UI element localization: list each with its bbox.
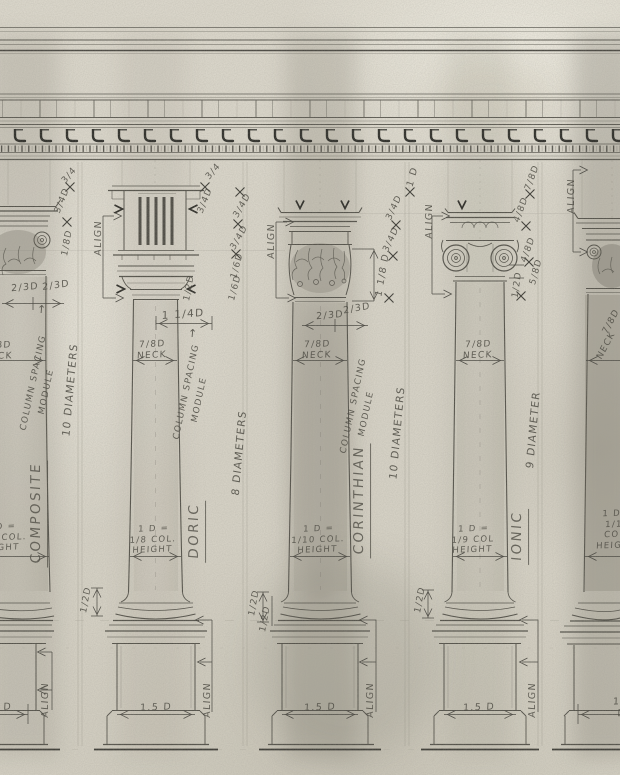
arrow-up-icon: ↑ xyxy=(36,303,48,317)
dimension-label: 2/3D xyxy=(343,301,371,318)
dimension-label: 1/2D xyxy=(182,273,198,302)
dimension-label: 3/4D xyxy=(196,186,216,216)
align-label: ALIGN xyxy=(202,682,214,719)
order-label-composite: COMPOSITE xyxy=(28,458,48,567)
pedestal-width-label: 1.5 D xyxy=(612,696,620,720)
dimension-label: 5/8D xyxy=(528,257,546,287)
dimension-label: 1 D xyxy=(405,165,421,189)
order-label-doric: DORIC xyxy=(186,499,206,563)
neck-label: 7/8D NECK xyxy=(302,339,333,363)
diameter-rule-label: 1 D = 1/10 COL. HEIGHT xyxy=(290,523,345,557)
dimension-label: 3/4D xyxy=(229,223,252,253)
pedestal-width-label: 1.5 D xyxy=(463,701,496,714)
diameter-rule-label: 1 D = 1/10 COL. HEIGHT xyxy=(596,508,620,552)
diameter-rule-label: 1 D = 1/10 COL. HEIGHT xyxy=(0,521,28,555)
dimension-label: 1/2D xyxy=(79,585,95,614)
align-label: ALIGN xyxy=(266,223,278,260)
pedestal-width-label: 1.5 D xyxy=(304,701,337,714)
align-label: ALIGN xyxy=(527,682,539,719)
dimension-label: 1/6D xyxy=(227,273,245,303)
diameters-label: 10 DIAMETERS xyxy=(60,342,81,437)
dimension-label: 3/4D xyxy=(384,193,405,223)
dimension-label: 2/3D xyxy=(42,278,70,294)
dimension-label: NECK xyxy=(595,330,618,362)
align-label: ALIGN xyxy=(93,220,105,257)
align-label: ALIGN xyxy=(424,203,436,240)
dimension-label: 2/3D xyxy=(316,309,344,323)
dimension-label: 1/2D xyxy=(258,604,274,633)
architectural-sketch-sheet: 3/43/4D1/8DALIGN2/3D2/3D↑COLUMN SPACINGM… xyxy=(0,0,620,775)
annotation-layer: 3/43/4D1/8DALIGN2/3D2/3D↑COLUMN SPACINGM… xyxy=(0,0,620,775)
order-label-ionic: IONIC xyxy=(509,507,529,565)
dimension-label: 3/4D xyxy=(232,191,255,221)
dimension-label: 3/4 xyxy=(204,161,224,183)
arrow-up-icon: ↑ xyxy=(187,327,199,341)
diameter-rule-label: 1 D = 1/9 COL HEIGHT xyxy=(451,523,495,556)
neck-label: 7/8D NECK xyxy=(463,339,494,363)
align-label: ALIGN xyxy=(566,178,578,215)
dimension-label: 1 1/4D xyxy=(162,307,205,323)
dimension-label: 3/4D xyxy=(381,225,402,255)
neck-label: 7/8D NECK xyxy=(137,339,168,363)
diameters-label: 8 DIAMETERS xyxy=(230,409,250,496)
dimension-label: 4/8D xyxy=(512,195,531,225)
dimension-label: 2/3D xyxy=(11,281,39,295)
dimension-label: 1/2D xyxy=(413,585,429,614)
align-label: ALIGN xyxy=(365,682,377,719)
diameter-rule-label: 1 D = 1/8 COL. HEIGHT xyxy=(129,523,178,557)
align-label: ALIGN xyxy=(40,682,52,719)
pedestal-width-label: 1.5 D xyxy=(0,701,12,714)
dimension-label: 1/8D xyxy=(60,228,76,257)
dimension-label: 3/4 xyxy=(60,165,80,187)
order-label-corinthian: CORINTHIAN xyxy=(351,442,371,559)
diameters-label: 9 DIAMETER xyxy=(524,390,544,469)
pedestal-width-label: 1.5 D xyxy=(140,701,173,714)
dimension-label: 3/4D xyxy=(53,186,73,216)
dimension-label: 1 1/8 D xyxy=(373,252,392,298)
neck-label: 7/8D NECK xyxy=(0,340,13,364)
diameters-label: 10 DIAMETERS xyxy=(387,385,408,480)
dimension-label: 7/8D xyxy=(523,163,542,193)
dimension-label: 1/2D xyxy=(511,271,526,300)
